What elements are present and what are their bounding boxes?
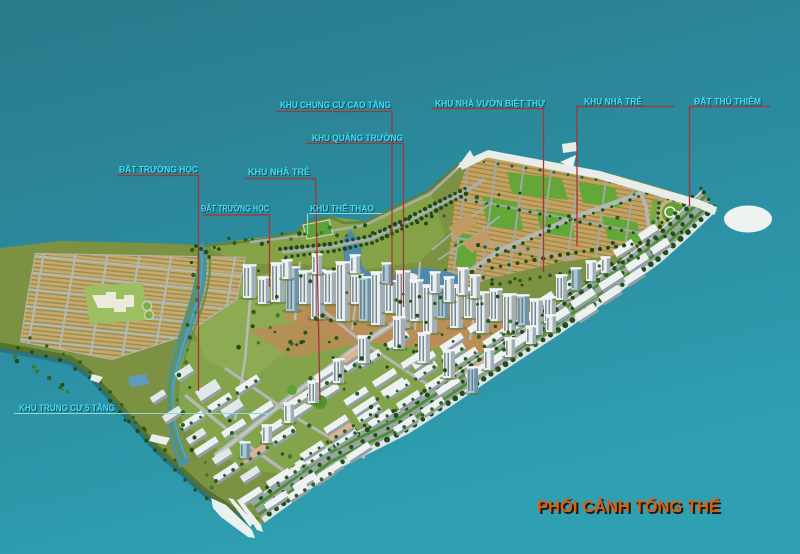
svg-text:KHU THỂ THAO: KHU THỂ THAO <box>310 203 374 214</box>
svg-text:KHU NHÀ TRẺ: KHU NHÀ TRẺ <box>248 166 310 177</box>
svg-text:KHU NHÀ TRẺ: KHU NHÀ TRẺ <box>584 96 642 107</box>
svg-text:KHU TRUNG CƯ 5 TẦNG: KHU TRUNG CƯ 5 TẦNG <box>19 403 115 413</box>
svg-text:ĐẤT TRƯỜNG HỌC: ĐẤT TRƯỜNG HỌC <box>201 203 269 214</box>
svg-text:ĐẤT TRƯỜNG HỌC: ĐẤT TRƯỜNG HỌC <box>119 164 198 175</box>
svg-text:PHỐI CẢNH TỔNG THỂ: PHỐI CẢNH TỔNG THỂ <box>537 496 720 516</box>
svg-text:KHU QUẢNG TRƯỜNG: KHU QUẢNG TRƯỜNG <box>312 132 403 143</box>
svg-text:KHU NHÀ VƯỜN BIỆT THỰ: KHU NHÀ VƯỜN BIỆT THỰ <box>435 98 546 109</box>
svg-text:ĐẤT THỦ THIÊM: ĐẤT THỦ THIÊM <box>694 96 761 107</box>
svg-text:KHU CHUNG CƯ CAO TẦNG: KHU CHUNG CƯ CAO TẦNG <box>280 100 391 110</box>
